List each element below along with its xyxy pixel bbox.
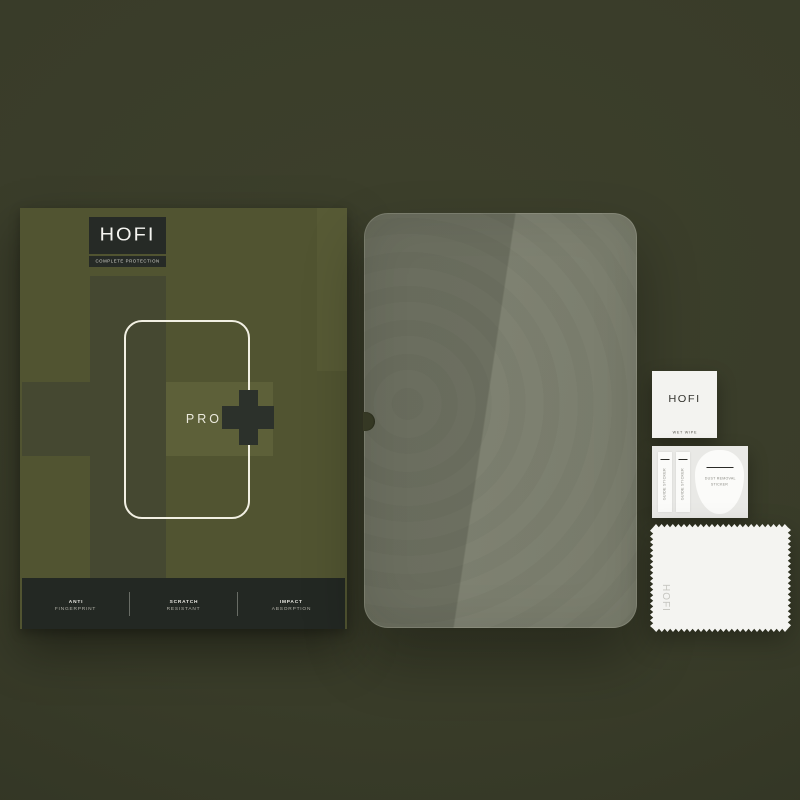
feature-strip: ANTI FINGERPRINT SCRATCH RESISTANT IMPAC… — [22, 578, 345, 629]
wet-wipe-label: WET WIPE — [652, 421, 717, 439]
feature-line2: FINGERPRINT — [33, 606, 119, 612]
sticker-mark-line — [706, 467, 733, 468]
tagline-text: COMPLETE PROTECTION — [95, 259, 159, 263]
camera-notch — [363, 412, 375, 431]
box-artwork: HOFI COMPLETE PROTECTION PRO ANTI FINGER… — [20, 208, 347, 629]
tempered-glass-protector — [364, 213, 637, 628]
guide-sticker-label: GUIDE STICKER — [681, 472, 685, 501]
wet-wipe-label-text: WET WIPE — [672, 431, 697, 435]
sticker-sheet: GUIDE STICKER GUIDE STICKER DUST REMOVAL… — [652, 446, 748, 518]
guide-sticker: GUIDE STICKER — [658, 452, 672, 512]
guide-sticker: GUIDE STICKER — [676, 452, 690, 512]
feature-line1: ANTI — [68, 599, 82, 605]
wet-wipe-sachet: HOFI WET WIPE — [652, 371, 717, 438]
guide-sticker-label: GUIDE STICKER — [663, 472, 667, 501]
microfiber-cloth: HOFI — [650, 524, 791, 632]
model-label: PRO — [166, 412, 222, 426]
cloth-brand: HOFI — [660, 584, 671, 618]
sticker-mark-line — [679, 459, 688, 460]
feature-anti-fingerprint: ANTI FINGERPRINT — [22, 595, 129, 613]
feature-line2: RESISTANT — [141, 606, 227, 612]
cloth-wrapper: HOFI — [650, 524, 791, 632]
brand-header-block: HOFI — [89, 217, 166, 254]
feature-impact-absorption: IMPACT ABSORPTION — [238, 595, 345, 613]
hofi-logo: HOFI — [100, 225, 156, 246]
dust-label-line2: STICKER — [705, 483, 734, 487]
feature-line2: ABSORPTION — [249, 606, 335, 612]
wet-wipe-brand: HOFI — [652, 393, 717, 404]
product-box: HOFI COMPLETE PROTECTION PRO ANTI FINGER… — [20, 208, 347, 629]
sticker-mark-line — [661, 459, 670, 460]
dust-removal-sticker: DUST REMOVAL STICKER — [695, 450, 744, 514]
plus-icon — [239, 390, 258, 445]
feature-scratch-resistant: SCRATCH RESISTANT — [130, 595, 237, 613]
dust-removal-label: DUST REMOVAL STICKER — [695, 476, 744, 488]
product-scene: HOFI COMPLETE PROTECTION PRO ANTI FINGER… — [0, 0, 800, 800]
box-edge-highlight — [317, 208, 347, 371]
feature-line1: IMPACT — [280, 599, 303, 605]
feature-line1: SCRATCH — [169, 599, 198, 605]
dust-label-line1: DUST REMOVAL — [705, 477, 734, 481]
tagline-bar: COMPLETE PROTECTION — [89, 256, 166, 267]
